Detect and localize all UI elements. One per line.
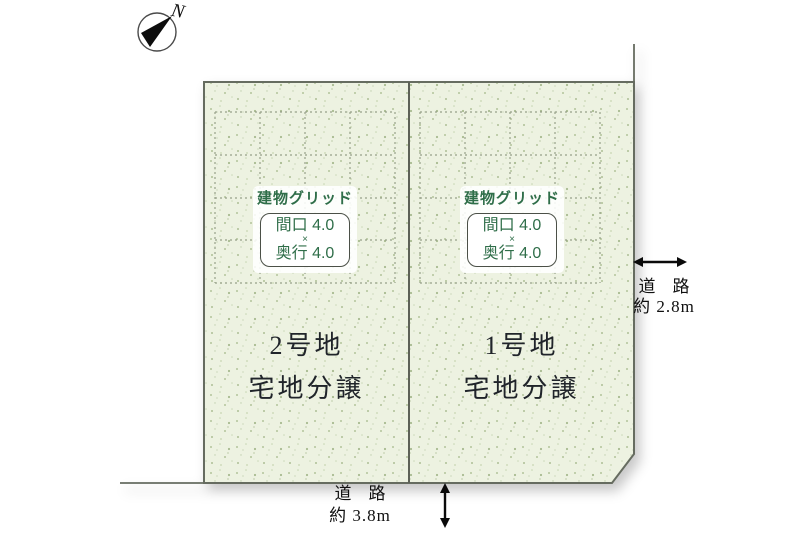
depth-value: 奥行 4.0 xyxy=(468,245,556,263)
north-compass: N xyxy=(138,0,188,51)
road-note-bottom: 道 路 約 3.8m xyxy=(304,483,416,527)
site-outline xyxy=(204,82,634,483)
road-width-value: 約 3.8m xyxy=(304,505,416,527)
plot2-label: 2号地 宅地分譲 xyxy=(204,330,409,405)
depth-value: 奥行 4.0 xyxy=(261,245,349,263)
building-grid-card-plot1: 建物グリッド 間口 4.0 × 奥行 4.0 xyxy=(460,186,564,273)
building-grid-title: 建物グリッド xyxy=(460,190,564,208)
times-symbol: × xyxy=(468,235,556,245)
road-width-value: 約 2.8m xyxy=(627,297,701,317)
plot1-category: 宅地分譲 xyxy=(409,373,634,405)
site-plan-diagram: N 建物グリッド 間口 4.0 × 奥行 4.0 建物グリッド 間口 4.0 ×… xyxy=(0,0,801,534)
building-grid-card-plot2: 建物グリッド 間口 4.0 × 奥行 4.0 xyxy=(253,186,357,273)
road-width-arrow-right xyxy=(633,257,687,267)
building-grid-dimensions: 間口 4.0 × 奥行 4.0 xyxy=(467,213,557,267)
site-plan-drawing: N xyxy=(0,0,801,534)
road-label: 道 路 xyxy=(304,483,416,505)
compass-north-label: N xyxy=(169,0,188,23)
building-grid-dimensions: 間口 4.0 × 奥行 4.0 xyxy=(260,213,350,267)
road-note-right: 道 路 約 2.8m xyxy=(627,277,701,317)
plot1-name: 1号地 xyxy=(409,330,634,362)
frontage-value: 間口 4.0 xyxy=(261,217,349,235)
frontage-value: 間口 4.0 xyxy=(468,217,556,235)
plot1-label: 1号地 宅地分譲 xyxy=(409,330,634,405)
building-grid-title: 建物グリッド xyxy=(253,190,357,208)
plot2-category: 宅地分譲 xyxy=(204,373,409,405)
road-width-arrow-bottom xyxy=(440,483,450,528)
road-label: 道 路 xyxy=(627,277,701,297)
plot2-name: 2号地 xyxy=(204,330,409,362)
times-symbol: × xyxy=(261,235,349,245)
